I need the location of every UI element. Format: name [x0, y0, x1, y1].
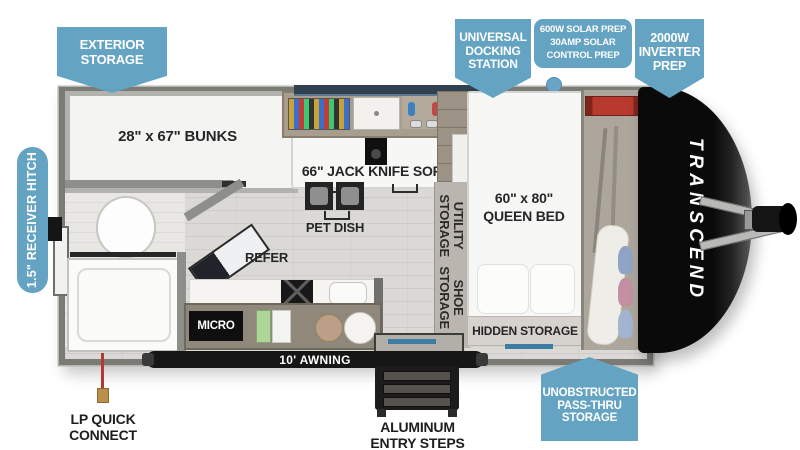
inverter-line3: PREP: [635, 59, 704, 73]
bedding: [530, 264, 575, 314]
stove: [281, 280, 313, 303]
hidden-storage-label: HIDDEN STORAGE: [472, 324, 578, 338]
awning-label: 10' AWNING: [279, 353, 350, 367]
game-storage: [288, 98, 350, 130]
sink-bowl: [344, 312, 376, 344]
shoe-storage-line2: STORAGE: [437, 267, 451, 330]
receiver-hitch-tab: [47, 217, 62, 241]
inverter-line1: 2000W: [635, 31, 704, 45]
passthru-line3: STORAGE: [541, 412, 638, 425]
bathroom-wall: [65, 180, 233, 188]
step-leg: [377, 409, 386, 417]
entry-steps-label: ALUMINUM ENTRY STEPS: [360, 420, 475, 450]
inverter-line2: INVERTER: [635, 45, 704, 59]
callout-pass-thru-storage: UNOBSTRUCTED PASS-THRU STORAGE: [541, 357, 638, 441]
cabinet-panel: [353, 97, 400, 130]
lp-quick-connect-label: LP QUICK CONNECT: [53, 412, 153, 443]
pass-thru-storage-area: [584, 90, 640, 350]
cutting-board-green: [256, 310, 271, 343]
pet-dish-stand: [324, 211, 350, 220]
outlet-icon: [410, 120, 422, 128]
lp-line2: CONNECT: [53, 428, 153, 444]
awning-cap-left: [142, 353, 154, 366]
cutting-board-white: [272, 310, 291, 343]
pet-dish-left: [305, 182, 333, 210]
coupler-knob: [779, 203, 797, 235]
queen-bed-line2: QUEEN BED: [467, 208, 581, 226]
shower-pan: [77, 268, 171, 342]
passthru-line2: PASS-THRU: [541, 400, 638, 413]
entry-steps: [375, 366, 459, 410]
knob-icon: [374, 111, 379, 116]
solar-line2: 30AMP SOLAR: [534, 37, 632, 50]
floorplan-page: 28" x 67" BUNKS REFER MICRO 66" JACK KNI…: [0, 0, 800, 450]
passthru-line1: UNOBSTRUCTED: [541, 387, 638, 400]
toilet: [96, 196, 156, 258]
sink-cover: [329, 282, 367, 305]
entry-steps-line1: ALUMINUM: [360, 420, 475, 436]
callout-receiver-hitch: 1.5" RECEIVER HITCH: [17, 147, 48, 293]
awning-cap-right: [476, 353, 488, 366]
exterior-storage-line2: STORAGE: [57, 53, 167, 68]
docking-line3: STATION: [455, 58, 531, 71]
callout-exterior-storage: EXTERIOR STORAGE: [57, 27, 167, 93]
lp-fitting: [97, 388, 109, 403]
lp-line1: LP QUICK: [53, 412, 153, 428]
lp-line: [101, 353, 104, 389]
gear-bag: [585, 96, 640, 116]
pet-dish-bowl: [310, 187, 328, 205]
utility-storage-line1: UTILITY: [451, 195, 465, 258]
shower: [67, 258, 181, 352]
microwave: MICRO: [189, 311, 243, 341]
pet-dish-label: PET DISH: [295, 220, 375, 235]
hidden-storage-bench: HIDDEN STORAGE: [467, 316, 583, 346]
bed-step-tread: [505, 344, 553, 349]
utility-storage-line2: STORAGE: [437, 195, 451, 258]
callout-solar-prep: 600W SOLAR PREP 30AMP SOLAR CONTROL PREP: [534, 19, 632, 68]
queen-bed-label: 60" x 80" QUEEN BED: [467, 190, 581, 225]
exterior-storage-line1: EXTERIOR: [57, 38, 167, 53]
queen-bed-line1: 60" x 80": [467, 190, 581, 208]
shoe: [618, 278, 633, 306]
brand-logo: TRANSCEND: [684, 138, 706, 302]
bowl: [315, 314, 343, 342]
front-cap: TRANSCEND: [638, 87, 752, 353]
docking-line1: UNIVERSAL: [455, 31, 531, 44]
pet-dish-right: [336, 182, 364, 210]
solar-line3: CONTROL PREP: [534, 50, 632, 63]
blue-switch-icon: [408, 102, 415, 116]
receiver-hitch-label: 1.5" RECEIVER HITCH: [26, 152, 40, 288]
step-leg: [448, 409, 457, 417]
pet-dish-bowl: [341, 187, 359, 205]
shoe-storage-line1: SHOE: [451, 267, 465, 330]
refer-label: REFER: [245, 250, 317, 265]
docking-line2: DOCKING: [455, 45, 531, 58]
speaker-icon: [371, 149, 381, 159]
shoe: [618, 246, 633, 274]
sofa-leg-right: [392, 184, 418, 193]
door-tread: [388, 339, 436, 344]
shower-curtain-track: [70, 252, 176, 257]
shoe: [618, 310, 633, 338]
solar-line1: 600W SOLAR PREP: [534, 24, 632, 37]
bedding: [477, 264, 529, 314]
entry-steps-line2: ENTRY STEPS: [360, 436, 475, 450]
bunks-label: 28" x 67" BUNKS: [80, 128, 275, 145]
micro-label: MICRO: [197, 320, 234, 332]
